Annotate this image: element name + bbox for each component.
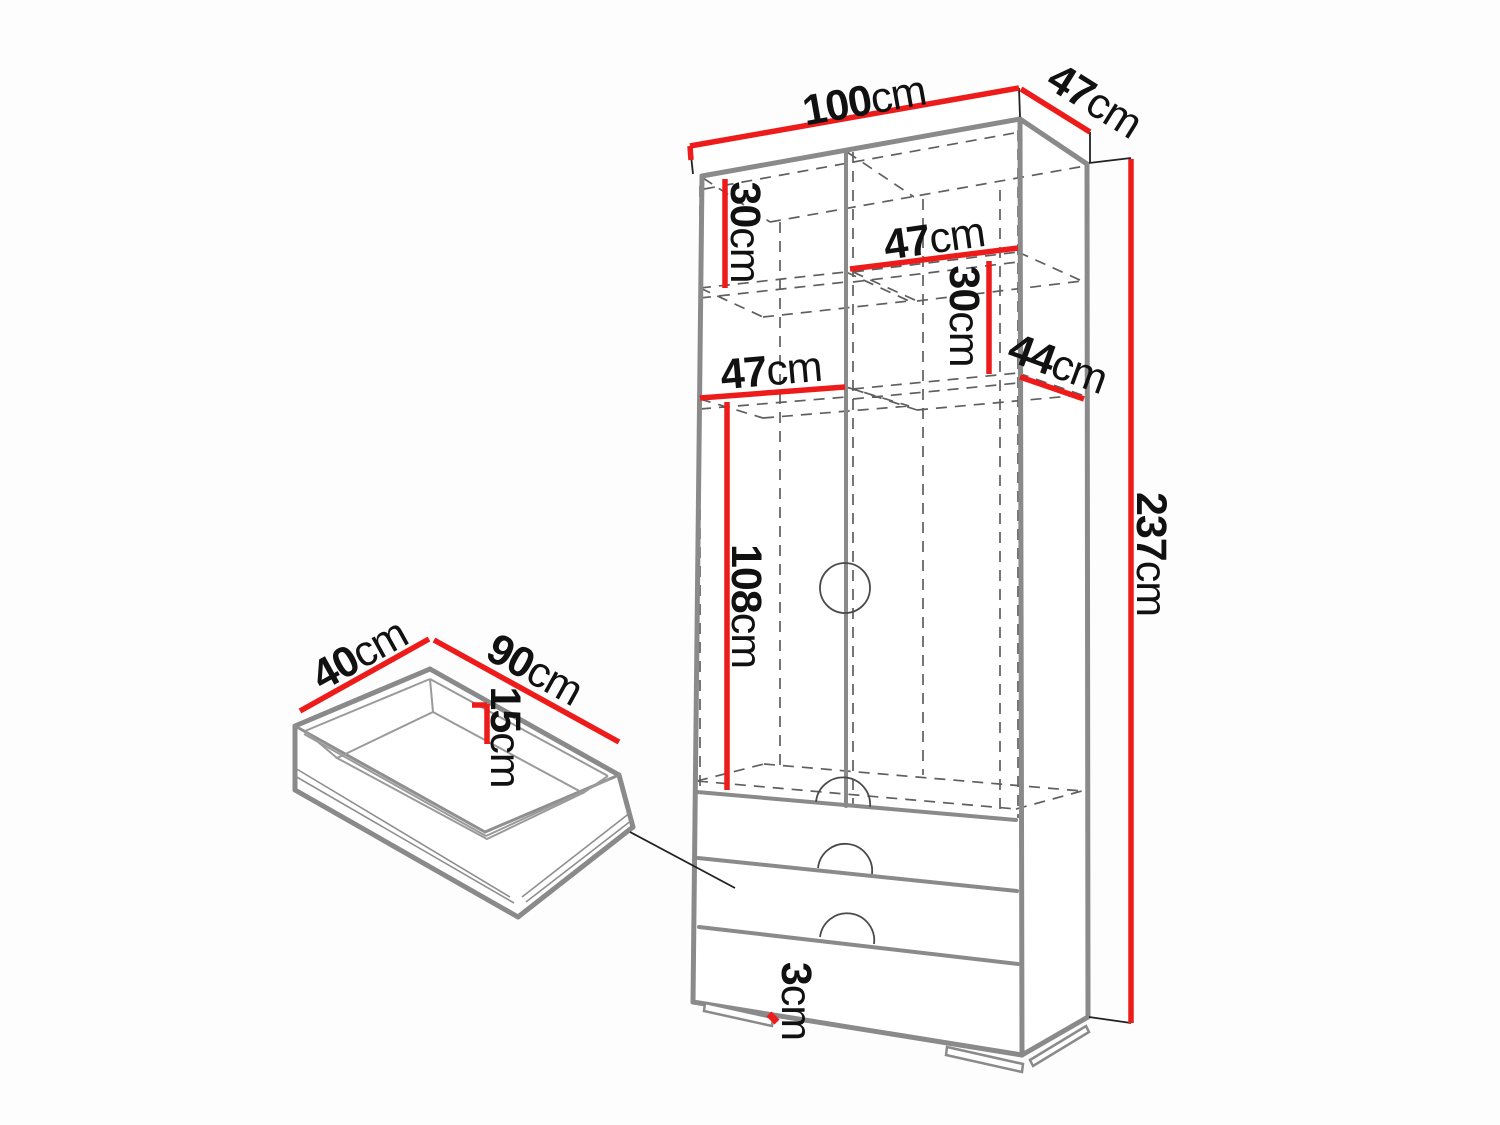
extension-height-bottom: [1089, 1017, 1131, 1023]
right-front-edge: [1020, 119, 1022, 1055]
drawer-figure: [295, 669, 633, 917]
back-right-edge: [1087, 164, 1088, 1017]
left-shelf-width-label: 47cm: [719, 343, 824, 400]
extension-height-top: [1089, 158, 1131, 163]
drawer-height-label: 15cm: [481, 686, 529, 787]
wardrobe-height-label: 237cm: [1127, 492, 1175, 616]
wardrobe-dimension-diagram: 100cm 47cm 30cm 47cm 30cm 44cm 47cm 108c…: [0, 0, 1500, 1125]
hanging-section-height-label: 108cm: [722, 544, 770, 668]
top-section-height-label: 30cm: [721, 181, 769, 282]
diagram-canvas: 100cm 47cm 30cm 47cm 30cm 44cm 47cm 108c…: [0, 0, 1500, 1125]
extension-top-right-corner: [1019, 88, 1020, 117]
plinth-height-label: 3cm: [772, 962, 820, 1040]
right-section-height-label: 30cm: [940, 265, 988, 366]
